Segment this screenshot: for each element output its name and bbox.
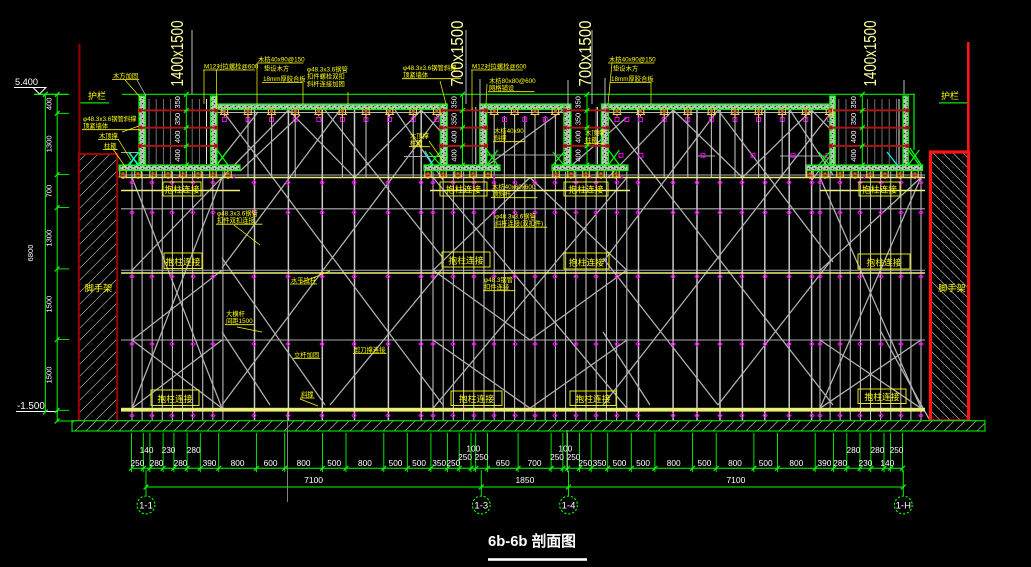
svg-text:18mm厚胶合板: 18mm厚胶合板 [611, 74, 654, 83]
svg-text:抱柱连接: 抱柱连接 [165, 256, 200, 267]
svg-text:顶斜杆: 顶斜杆 [492, 189, 512, 198]
svg-text:18mm厚胶合板: 18mm厚胶合板 [263, 74, 306, 83]
svg-text:斜撑: 斜撑 [494, 133, 507, 142]
svg-text:700: 700 [528, 458, 542, 468]
svg-text:斜撑: 斜撑 [301, 390, 314, 399]
svg-text:280: 280 [174, 458, 188, 468]
svg-text:500: 500 [327, 458, 341, 468]
svg-text:1300: 1300 [45, 135, 54, 152]
svg-text:280: 280 [833, 458, 847, 468]
svg-text:顶紧墙体: 顶紧墙体 [403, 70, 429, 79]
svg-text:7100: 7100 [726, 475, 745, 485]
svg-text:140: 140 [880, 458, 894, 468]
svg-text:350: 350 [574, 113, 583, 125]
svg-text:1850: 1850 [515, 475, 534, 485]
svg-text:φ48.3x3.6钢管斜撑: φ48.3x3.6钢管斜撑 [83, 114, 137, 123]
svg-text:350: 350 [432, 458, 446, 468]
svg-text:350: 350 [849, 113, 858, 125]
svg-text:φ48.3钢管: φ48.3钢管 [484, 275, 513, 284]
svg-text:1-4: 1-4 [562, 501, 576, 512]
svg-text:木顶撑: 木顶撑 [410, 131, 430, 140]
svg-text:木枋40x60x600: 木枋40x60x600 [492, 182, 536, 191]
svg-text:脚手架: 脚手架 [938, 283, 966, 294]
svg-text:350: 350 [173, 113, 182, 125]
svg-text:390: 390 [203, 458, 217, 468]
svg-text:350: 350 [450, 113, 459, 125]
svg-text:抱柱连接: 抱柱连接 [157, 393, 192, 404]
svg-text:400: 400 [173, 131, 182, 143]
svg-text:扣件双扣连接: 扣件双扣连接 [217, 216, 255, 225]
svg-text:500: 500 [412, 458, 426, 468]
svg-text:网格铺设: 网格铺设 [489, 83, 515, 92]
svg-text:扣件螺栓双扣: 扣件螺栓双扣 [307, 72, 345, 81]
svg-text:230: 230 [162, 445, 176, 455]
svg-text:600: 600 [264, 458, 278, 468]
svg-text:650: 650 [496, 458, 510, 468]
svg-text:350: 350 [173, 96, 182, 108]
svg-text:400: 400 [450, 149, 459, 161]
svg-text:1400x1500: 1400x1500 [167, 20, 187, 86]
svg-text:280: 280 [150, 458, 164, 468]
svg-text:间距1500: 间距1500 [226, 317, 253, 325]
svg-text:350: 350 [450, 96, 459, 108]
svg-text:斜杆连接(双扣件): 斜杆连接(双扣件) [495, 219, 543, 228]
svg-text:800: 800 [728, 458, 742, 468]
svg-text:1300: 1300 [45, 230, 54, 247]
svg-text:5.400: 5.400 [15, 77, 38, 87]
svg-text:木枋40x90: 木枋40x90 [494, 126, 524, 135]
svg-text:木枋40x90@150: 木枋40x90@150 [609, 55, 656, 64]
svg-text:400: 400 [173, 149, 182, 161]
svg-text:抱柱连接: 抱柱连接 [448, 255, 483, 266]
svg-text:φ48.3x3.6钢管: φ48.3x3.6钢管 [217, 209, 258, 218]
svg-text:400: 400 [849, 149, 858, 161]
svg-text:M12对拉螺栓@600: M12对拉螺栓@600 [204, 62, 259, 71]
svg-text:250: 250 [475, 452, 489, 462]
svg-text:垫设木方: 垫设木方 [264, 64, 289, 73]
svg-text:大横杆: 大横杆 [226, 309, 246, 318]
svg-text:390: 390 [817, 458, 831, 468]
svg-text:400: 400 [574, 131, 583, 143]
svg-text:500: 500 [613, 458, 627, 468]
svg-text:φ48.3x3.6钢管: φ48.3x3.6钢管 [495, 212, 536, 221]
svg-text:抱柱连接: 抱柱连接 [446, 184, 481, 195]
svg-text:500: 500 [636, 458, 650, 468]
svg-text:350: 350 [574, 96, 583, 108]
svg-text:800: 800 [231, 458, 245, 468]
svg-text:400: 400 [450, 131, 459, 143]
svg-text:500: 500 [697, 458, 711, 468]
svg-text:1-3: 1-3 [474, 501, 488, 512]
svg-text:140: 140 [140, 445, 154, 455]
svg-text:800: 800 [297, 458, 311, 468]
svg-text:抱柱连接: 抱柱连接 [568, 184, 603, 195]
svg-text:400: 400 [574, 149, 583, 161]
svg-text:木方加固: 木方加固 [113, 71, 138, 80]
svg-text:垫设木方: 垫设木方 [613, 64, 638, 73]
svg-text:700x1500: 700x1500 [447, 20, 467, 86]
svg-text:700: 700 [45, 185, 54, 198]
svg-text:250: 250 [578, 458, 592, 468]
svg-text:斜杆连接加固: 斜杆连接加固 [307, 79, 345, 88]
svg-text:木顶撑: 木顶撑 [585, 128, 605, 137]
svg-text:800: 800 [667, 458, 681, 468]
svg-text:230: 230 [858, 458, 872, 468]
svg-text:护栏: 护栏 [88, 90, 106, 101]
svg-text:250: 250 [890, 445, 904, 455]
svg-text:-1.500: -1.500 [17, 401, 45, 412]
svg-text:350: 350 [849, 96, 858, 108]
svg-text:1-1: 1-1 [139, 501, 153, 512]
svg-text:M12对拉螺栓@600: M12对拉螺栓@600 [472, 62, 527, 71]
svg-text:7100: 7100 [304, 475, 323, 485]
svg-text:剪刀撑连接: 剪刀撑连接 [354, 345, 386, 354]
svg-text:水平拉杆: 水平拉杆 [291, 276, 317, 285]
svg-text:抱柱连接: 抱柱连接 [864, 391, 899, 402]
svg-text:280: 280 [870, 445, 884, 455]
svg-text:250: 250 [550, 452, 564, 462]
svg-text:扣件连接: 扣件连接 [484, 282, 510, 291]
svg-text:抱柱连接: 抱柱连接 [575, 393, 610, 404]
svg-text:350: 350 [593, 458, 607, 468]
svg-text:柱箍: 柱箍 [585, 135, 598, 144]
svg-text:立杆加固: 立杆加固 [294, 350, 319, 359]
svg-text:6800: 6800 [26, 245, 35, 262]
svg-text:500: 500 [759, 458, 773, 468]
svg-text:φ48.3x3.6钢管斜撑: φ48.3x3.6钢管斜撑 [403, 63, 457, 72]
svg-text:脚手架: 脚手架 [85, 283, 113, 294]
svg-text:1-H: 1-H [896, 501, 911, 512]
svg-text:1500: 1500 [45, 296, 54, 313]
svg-text:抱柱连接: 抱柱连接 [459, 393, 494, 404]
svg-text:φ48.3x3.6钢管: φ48.3x3.6钢管 [307, 65, 348, 74]
svg-text:400: 400 [45, 97, 54, 110]
svg-text:280: 280 [187, 445, 201, 455]
svg-text:800: 800 [358, 458, 372, 468]
svg-text:木枋40x90@150: 木枋40x90@150 [258, 55, 305, 64]
svg-text:顶紧墙体: 顶紧墙体 [83, 121, 109, 130]
svg-text:抱柱连接: 抱柱连接 [862, 184, 897, 195]
svg-text:250: 250 [130, 458, 144, 468]
svg-text:250: 250 [458, 452, 472, 462]
svg-text:柱箍: 柱箍 [104, 141, 117, 150]
svg-text:280: 280 [846, 445, 860, 455]
svg-text:1400x1500: 1400x1500 [860, 20, 880, 86]
svg-text:木枋80x80@600: 木枋80x80@600 [489, 76, 536, 85]
svg-text:抱柱连接: 抱柱连接 [866, 257, 901, 268]
svg-text:木顶撑: 木顶撑 [99, 131, 119, 140]
svg-text:柱箍: 柱箍 [410, 138, 423, 147]
svg-text:800: 800 [789, 458, 803, 468]
svg-text:1500: 1500 [45, 367, 54, 384]
svg-text:抱柱连接: 抱柱连接 [164, 184, 199, 195]
svg-text:6b-6b 剖面图: 6b-6b 剖面图 [488, 532, 576, 550]
svg-text:护栏: 护栏 [941, 90, 959, 101]
svg-text:400: 400 [849, 131, 858, 143]
svg-text:抱柱连接: 抱柱连接 [569, 257, 604, 268]
svg-text:500: 500 [389, 458, 403, 468]
